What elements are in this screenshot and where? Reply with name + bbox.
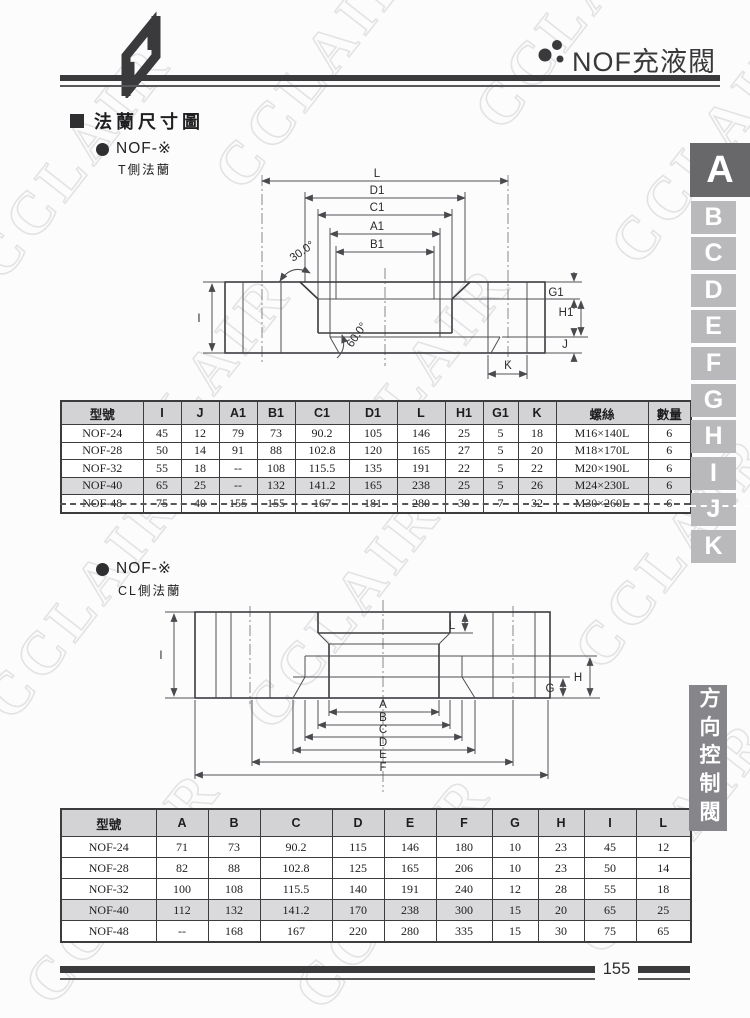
table-row: NOF-24717390.211514618010234512 bbox=[61, 837, 691, 858]
value-cell: 25 bbox=[181, 477, 219, 495]
flange2-side-label: CL側法蘭 bbox=[118, 580, 181, 599]
column-header: L bbox=[636, 809, 691, 837]
index-tab-h: H bbox=[691, 420, 736, 453]
value-cell: 5 bbox=[483, 442, 518, 460]
dim-label-D1: D1 bbox=[370, 185, 385, 197]
index-tab-f: F bbox=[691, 347, 736, 380]
value-cell: 6 bbox=[648, 425, 691, 443]
catalog-page: CCLAIRCCLAIRCCLAIRCCLAIRCCLAIRCCLAIRCCLA… bbox=[0, 0, 750, 1018]
value-cell: M24×230L bbox=[556, 477, 648, 495]
dim-label-angle30: 30.0° bbox=[288, 239, 317, 264]
model-cell: NOF-28 bbox=[61, 858, 156, 879]
index-tab-e: E bbox=[691, 310, 736, 343]
value-cell: 22 bbox=[445, 460, 483, 478]
value-cell: 105 bbox=[349, 425, 397, 443]
index-tab-i: I bbox=[691, 457, 736, 490]
circle-bullet-icon bbox=[96, 143, 109, 156]
footer-rule-right bbox=[638, 966, 690, 973]
dim-label-I: I bbox=[197, 313, 200, 325]
model-cell: NOF-24 bbox=[61, 837, 156, 858]
value-cell: 20 bbox=[518, 442, 556, 460]
value-cell: 25 bbox=[445, 425, 483, 443]
value-cell: 14 bbox=[636, 858, 691, 879]
model-cell: NOF-24 bbox=[61, 425, 143, 443]
dim-label-H: H bbox=[574, 672, 582, 684]
dim-label-C1: C1 bbox=[370, 202, 385, 214]
value-cell: 6 bbox=[648, 442, 691, 460]
value-cell: 100 bbox=[156, 879, 208, 900]
value-cell: -- bbox=[219, 477, 257, 495]
value-cell: 141.2 bbox=[295, 477, 349, 495]
value-cell: 146 bbox=[397, 425, 445, 443]
model-cell: NOF-32 bbox=[61, 460, 143, 478]
index-tab-g: G bbox=[691, 384, 736, 417]
section-heading-label: 法蘭尺寸圖 bbox=[94, 108, 204, 134]
value-cell: 15 bbox=[492, 900, 538, 921]
value-cell: 90.2 bbox=[295, 425, 349, 443]
dim-label-E: E bbox=[379, 749, 387, 761]
value-cell: M20×190L bbox=[556, 460, 648, 478]
value-cell: 71 bbox=[156, 837, 208, 858]
header-row: 型號IJA1B1C1D1LH1G1K螺絲數量 bbox=[61, 401, 691, 425]
column-header: 型號 bbox=[61, 401, 143, 425]
value-cell: 238 bbox=[384, 900, 436, 921]
value-cell: M18×170L bbox=[556, 442, 648, 460]
value-cell: 238 bbox=[397, 477, 445, 495]
value-cell: 82 bbox=[156, 858, 208, 879]
value-cell: 30 bbox=[538, 921, 584, 943]
cl-side-flange-table: 型號ABCDEFGHILNOF-24717390.211514618010234… bbox=[60, 808, 692, 943]
value-cell: 206 bbox=[436, 858, 492, 879]
column-header: I bbox=[143, 401, 181, 425]
column-header: G bbox=[492, 809, 538, 837]
value-cell: 25 bbox=[636, 900, 691, 921]
dim-label-B1: B1 bbox=[370, 239, 384, 251]
table-row: NOF-48--16816722028033515307565 bbox=[61, 921, 691, 943]
table-row: NOF-406525--132141.216523825526M24×230L6 bbox=[61, 477, 691, 495]
page-title: NOF充液閥 bbox=[572, 40, 716, 79]
value-cell: 88 bbox=[257, 442, 295, 460]
value-cell: 91 bbox=[219, 442, 257, 460]
value-cell: 191 bbox=[384, 879, 436, 900]
value-cell: 165 bbox=[349, 477, 397, 495]
value-cell: 18 bbox=[181, 460, 219, 478]
column-header: D1 bbox=[349, 401, 397, 425]
model-cell: NOF-32 bbox=[61, 879, 156, 900]
column-header: 螺絲 bbox=[556, 401, 648, 425]
model-cell: NOF-40 bbox=[61, 900, 156, 921]
column-header: C1 bbox=[295, 401, 349, 425]
value-cell: 23 bbox=[538, 837, 584, 858]
column-header: B1 bbox=[257, 401, 295, 425]
dim-label-B: B bbox=[379, 712, 387, 724]
value-cell: M16×140L bbox=[556, 425, 648, 443]
index-tab-c: C bbox=[691, 237, 736, 270]
table-row: NOF-32100108115.514019124012285518 bbox=[61, 879, 691, 900]
column-header: B bbox=[208, 809, 260, 837]
value-cell: 180 bbox=[436, 837, 492, 858]
table-row: NOF-2850149188102.812016527520M18×170L6 bbox=[61, 442, 691, 460]
value-cell: 191 bbox=[397, 460, 445, 478]
value-cell: 50 bbox=[584, 858, 636, 879]
index-tab-k: K bbox=[691, 530, 736, 563]
t-side-flange-table: 型號IJA1B1C1D1LH1G1K螺絲數量NOF-244512797390.2… bbox=[60, 400, 692, 514]
value-cell: 10 bbox=[492, 837, 538, 858]
dim-label-A: A bbox=[379, 699, 387, 711]
scan-artifact-dashed-line bbox=[60, 503, 690, 505]
model-cell: NOF-48 bbox=[61, 921, 156, 943]
index-tab-b: B bbox=[691, 201, 736, 234]
value-cell: 168 bbox=[208, 921, 260, 943]
flange1-label: NOF-※ bbox=[116, 139, 172, 158]
circle-bullet-icon bbox=[96, 563, 109, 576]
value-cell: 65 bbox=[584, 900, 636, 921]
value-cell: 22 bbox=[518, 460, 556, 478]
dim-label-C: C bbox=[379, 724, 387, 736]
value-cell: 65 bbox=[636, 921, 691, 943]
flange2-drawing: L I H G A B C D E F bbox=[140, 598, 620, 800]
value-cell: 335 bbox=[436, 921, 492, 943]
footer-rule-left bbox=[60, 966, 595, 973]
value-cell: 115 bbox=[332, 837, 384, 858]
value-cell: 79 bbox=[219, 425, 257, 443]
scan-artifact-dashed-line-white bbox=[690, 505, 750, 507]
value-cell: 280 bbox=[384, 921, 436, 943]
dim-label-G1: G1 bbox=[548, 287, 563, 299]
value-cell: 108 bbox=[257, 460, 295, 478]
value-cell: 132 bbox=[208, 900, 260, 921]
value-cell: 132 bbox=[257, 477, 295, 495]
index-tab-j: J bbox=[691, 493, 736, 526]
value-cell: 125 bbox=[332, 858, 384, 879]
page-number: 155 bbox=[595, 960, 638, 979]
header-rule-thick bbox=[60, 75, 720, 81]
column-header: G1 bbox=[483, 401, 518, 425]
category-label: 方向控制閥 bbox=[689, 685, 727, 831]
header-row: 型號ABCDEFGHIL bbox=[61, 809, 691, 837]
header-rule-thin bbox=[60, 85, 720, 87]
value-cell: 165 bbox=[384, 858, 436, 879]
value-cell: 15 bbox=[492, 921, 538, 943]
column-header: A1 bbox=[219, 401, 257, 425]
column-header: H bbox=[538, 809, 584, 837]
value-cell: 45 bbox=[143, 425, 181, 443]
column-header: H1 bbox=[445, 401, 483, 425]
dim-label-I: I bbox=[159, 650, 162, 662]
index-tab-d: D bbox=[691, 274, 736, 307]
value-cell: 65 bbox=[143, 477, 181, 495]
value-cell: 23 bbox=[538, 858, 584, 879]
dim-label-F: F bbox=[379, 762, 386, 774]
column-header: 數量 bbox=[648, 401, 691, 425]
dim-label-H1: H1 bbox=[559, 307, 574, 319]
dim-label-L: L bbox=[449, 620, 456, 632]
dim-label-L: L bbox=[374, 168, 381, 180]
column-header: K bbox=[518, 401, 556, 425]
dim-label-A1: A1 bbox=[370, 221, 384, 233]
footer-thinline-left bbox=[60, 978, 595, 980]
value-cell: 5 bbox=[483, 460, 518, 478]
value-cell: 45 bbox=[584, 837, 636, 858]
column-header: E bbox=[384, 809, 436, 837]
flange1-drawing: L D1 C1 A1 B1 30.0° 6 bbox=[150, 166, 620, 398]
section-heading: 法蘭尺寸圖 bbox=[70, 108, 204, 134]
value-cell: 165 bbox=[397, 442, 445, 460]
value-cell: 73 bbox=[208, 837, 260, 858]
value-cell: 55 bbox=[143, 460, 181, 478]
value-cell: 120 bbox=[349, 442, 397, 460]
value-cell: 115.5 bbox=[295, 460, 349, 478]
value-cell: 14 bbox=[181, 442, 219, 460]
value-cell: 90.2 bbox=[260, 837, 332, 858]
column-header: J bbox=[181, 401, 219, 425]
table-row: NOF-40112132141.217023830015206525 bbox=[61, 900, 691, 921]
value-cell: 240 bbox=[436, 879, 492, 900]
value-cell: 27 bbox=[445, 442, 483, 460]
column-header: C bbox=[260, 809, 332, 837]
column-header: I bbox=[584, 809, 636, 837]
value-cell: 20 bbox=[538, 900, 584, 921]
value-cell: 220 bbox=[332, 921, 384, 943]
value-cell: 73 bbox=[257, 425, 295, 443]
value-cell: 141.2 bbox=[260, 900, 332, 921]
model-cell: NOF-40 bbox=[61, 477, 143, 495]
column-header: A bbox=[156, 809, 208, 837]
value-cell: -- bbox=[156, 921, 208, 943]
value-cell: 12 bbox=[636, 837, 691, 858]
value-cell: 170 bbox=[332, 900, 384, 921]
model-cell: NOF-28 bbox=[61, 442, 143, 460]
value-cell: 115.5 bbox=[260, 879, 332, 900]
value-cell: 25 bbox=[445, 477, 483, 495]
index-tab-a: A bbox=[690, 143, 750, 197]
value-cell: 10 bbox=[492, 858, 538, 879]
value-cell: 6 bbox=[648, 477, 691, 495]
table-row: NOF-288288102.812516520610235014 bbox=[61, 858, 691, 879]
column-header: F bbox=[436, 809, 492, 837]
value-cell: 28 bbox=[538, 879, 584, 900]
value-cell: 12 bbox=[492, 879, 538, 900]
square-bullet-icon bbox=[70, 114, 84, 128]
value-cell: 12 bbox=[181, 425, 219, 443]
dim-label-J: J bbox=[562, 339, 568, 351]
value-cell: 55 bbox=[584, 879, 636, 900]
dim-label-angle60: 60.0° bbox=[345, 321, 370, 350]
value-cell: 50 bbox=[143, 442, 181, 460]
value-cell: 102.8 bbox=[295, 442, 349, 460]
table-row: NOF-325518--108115.513519122522M20×190L6 bbox=[61, 460, 691, 478]
column-header: L bbox=[397, 401, 445, 425]
value-cell: 6 bbox=[648, 460, 691, 478]
flange2-label: NOF-※ bbox=[116, 559, 172, 578]
value-cell: 75 bbox=[584, 921, 636, 943]
dim-label-K: K bbox=[504, 360, 512, 372]
value-cell: 26 bbox=[518, 477, 556, 495]
title-dots-icon bbox=[536, 38, 566, 66]
value-cell: 108 bbox=[208, 879, 260, 900]
value-cell: 88 bbox=[208, 858, 260, 879]
value-cell: 112 bbox=[156, 900, 208, 921]
value-cell: 102.8 bbox=[260, 858, 332, 879]
column-header: 型號 bbox=[61, 809, 156, 837]
dim-label-D: D bbox=[379, 737, 387, 749]
value-cell: 167 bbox=[260, 921, 332, 943]
value-cell: -- bbox=[219, 460, 257, 478]
value-cell: 140 bbox=[332, 879, 384, 900]
value-cell: 146 bbox=[384, 837, 436, 858]
dim-label-G: G bbox=[546, 683, 555, 695]
value-cell: 5 bbox=[483, 477, 518, 495]
value-cell: 18 bbox=[636, 879, 691, 900]
table-row: NOF-244512797390.210514625518M16×140L6 bbox=[61, 425, 691, 443]
value-cell: 5 bbox=[483, 425, 518, 443]
value-cell: 18 bbox=[518, 425, 556, 443]
footer-thinline-right bbox=[638, 978, 690, 980]
index-tab-strip: ABCDEFGHIJK bbox=[690, 143, 750, 563]
value-cell: 135 bbox=[349, 460, 397, 478]
value-cell: 300 bbox=[436, 900, 492, 921]
column-header: D bbox=[332, 809, 384, 837]
